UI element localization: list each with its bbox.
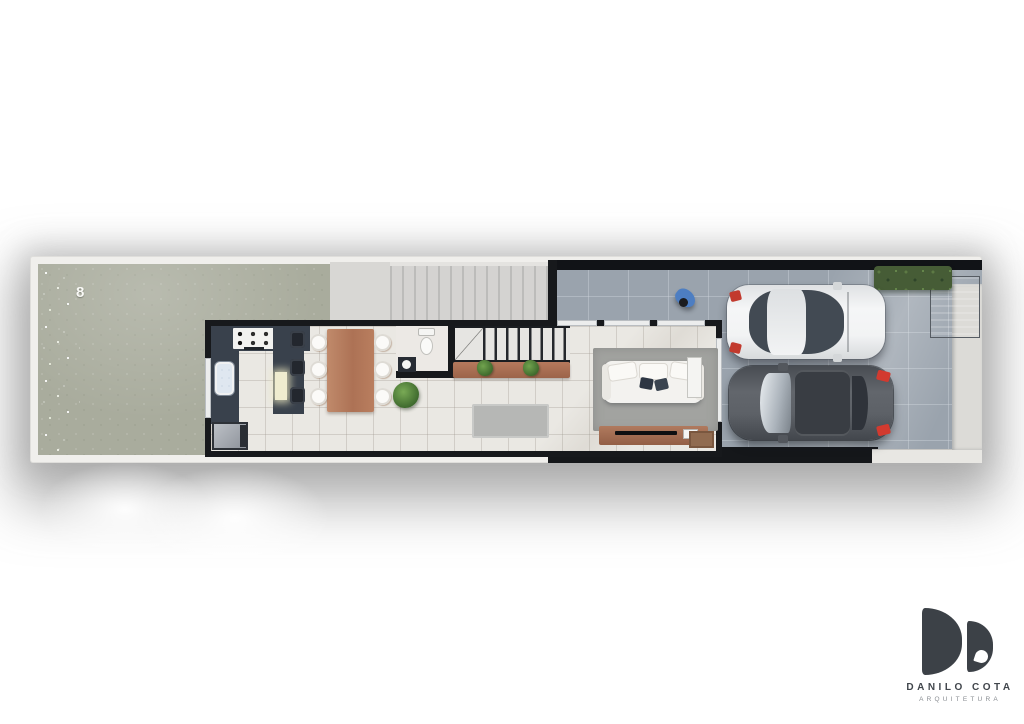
flower-bed <box>38 264 80 455</box>
white-car-mirror <box>833 282 842 290</box>
stair-treads <box>483 328 570 360</box>
side-cabinet <box>687 357 702 398</box>
throw-pillow <box>654 378 669 392</box>
bathroom-vanity <box>398 357 416 372</box>
studio-tagline: ARQUITETURA <box>898 696 1022 703</box>
white-car <box>727 285 885 359</box>
island-light <box>275 372 287 400</box>
junction-wall <box>548 260 557 322</box>
pergola-deck <box>390 262 548 324</box>
patio-slab <box>330 262 392 324</box>
doormat <box>689 431 714 448</box>
white-car-taillight <box>729 342 742 354</box>
dark-car-rear-glass <box>852 376 868 431</box>
white-car-taillight <box>729 290 742 302</box>
studio-name: DANILO COTA <box>898 682 1022 693</box>
bar-stool <box>290 331 305 348</box>
throw-pillow <box>639 377 654 390</box>
logo-shape-d <box>922 608 962 675</box>
lens-flare <box>140 466 330 571</box>
white-car-hood <box>847 292 882 353</box>
dark-car-mirror <box>778 435 788 443</box>
dining-chair <box>310 361 327 378</box>
potted-plant <box>477 360 493 376</box>
sofa-cushion <box>607 361 638 382</box>
window-strip <box>657 320 705 326</box>
floor-plan-page: 8 <box>0 0 1024 724</box>
person-head <box>679 298 688 307</box>
hall-rug <box>472 404 549 438</box>
lot-number-label: 8 <box>76 284 85 301</box>
cooktop <box>233 328 275 349</box>
dark-car-roof <box>795 370 851 435</box>
dark-car-taillight <box>876 370 891 382</box>
toilet-bowl <box>420 337 433 355</box>
boundary-sidewalk <box>872 449 982 463</box>
dining-table <box>327 329 374 412</box>
dark-car-mirror <box>778 363 788 371</box>
dining-chair <box>374 334 391 351</box>
bathroom-wall <box>396 371 455 378</box>
utility-cabinet <box>212 422 248 450</box>
hedge <box>874 266 952 290</box>
dining-chair <box>310 388 327 405</box>
potted-plant <box>523 360 539 376</box>
lens-flare <box>40 462 210 557</box>
white-car-mirror <box>833 354 842 362</box>
person <box>670 284 700 316</box>
dining-chair <box>374 388 391 405</box>
dining-chair <box>310 334 327 351</box>
dark-car-taillight <box>876 424 891 436</box>
white-car-roof <box>767 289 807 356</box>
wood-sideboard <box>453 362 570 378</box>
staircase <box>455 326 570 363</box>
toilet-tank <box>418 328 435 336</box>
logo-mark <box>898 606 1022 676</box>
studio-logo: DANILO COTA ARQUITETURA <box>898 606 1022 718</box>
toilet <box>418 328 435 356</box>
house <box>205 320 722 457</box>
stair-landing <box>455 328 483 360</box>
kitchen-sink <box>215 362 234 395</box>
floor-plan-render: 8 <box>30 256 982 463</box>
logo-shape-a <box>967 621 993 672</box>
dark-car-windshield <box>760 373 791 434</box>
dark-car <box>729 366 893 440</box>
tv <box>615 431 677 435</box>
window-strip <box>604 320 650 326</box>
bar-stool <box>290 359 305 376</box>
logo-notch <box>973 648 989 664</box>
dining-chair <box>374 361 391 378</box>
bar-stool <box>290 387 305 404</box>
